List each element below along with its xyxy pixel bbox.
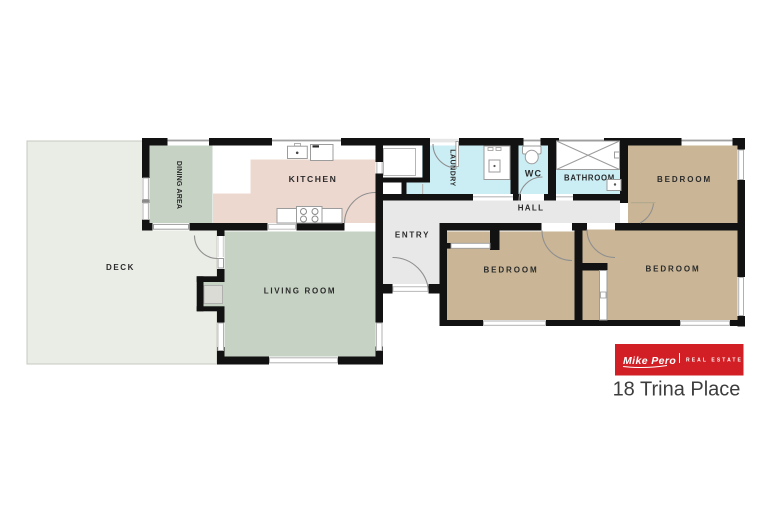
svg-text:BEDROOM: BEDROOM: [657, 175, 712, 184]
svg-text:18 Trina Place: 18 Trina Place: [613, 379, 741, 401]
svg-text:DECK: DECK: [106, 263, 135, 272]
svg-text:BEDROOM: BEDROOM: [645, 265, 700, 274]
svg-text:DINING AREA: DINING AREA: [175, 161, 182, 209]
svg-text:Mike Pero: Mike Pero: [623, 355, 676, 367]
svg-text:LIVING ROOM: LIVING ROOM: [264, 287, 336, 296]
svg-text:ENTRY: ENTRY: [395, 231, 430, 240]
svg-text:KITCHEN: KITCHEN: [289, 174, 338, 184]
svg-text:BEDROOM: BEDROOM: [483, 266, 538, 275]
svg-text:HALL: HALL: [518, 204, 545, 213]
svg-text:REAL ESTATE: REAL ESTATE: [686, 358, 743, 364]
